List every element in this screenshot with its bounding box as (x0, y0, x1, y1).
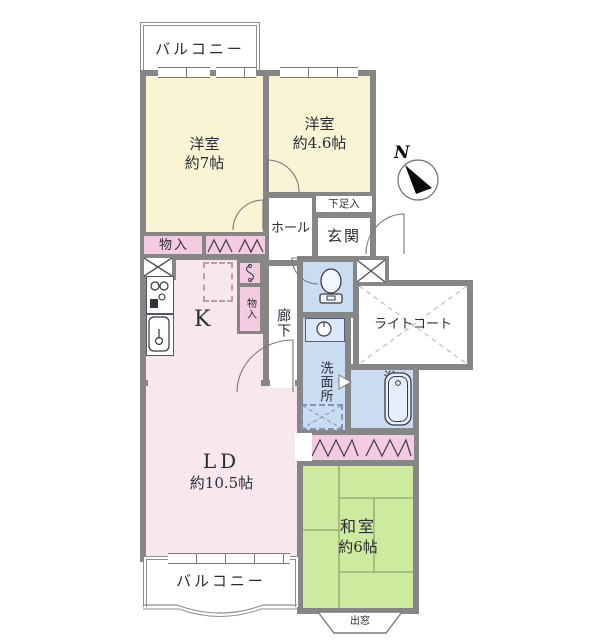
balcony-bottom-label: バルコニー (144, 557, 298, 607)
storage-upper-label: 物入 (144, 236, 204, 256)
hall: ホール (263, 192, 318, 266)
window-west7-a (158, 67, 210, 78)
window-ld (168, 553, 290, 564)
gas-stove (146, 276, 174, 314)
folding-door-icon (308, 435, 414, 461)
washbasin (305, 318, 345, 342)
door-bathroom (339, 374, 353, 390)
living-dining: LD 約10.5帖 (140, 380, 303, 562)
door-swing-west7 (233, 200, 263, 230)
window-west46 (280, 67, 358, 78)
storage-corridor: 物入 (237, 284, 263, 334)
water-heater-icon (240, 263, 260, 283)
compass-north-label: N (393, 143, 411, 163)
door-swing-hall (292, 258, 318, 284)
entrance-label: 玄関 (318, 218, 370, 256)
storage-corridor-label: 物入 (240, 287, 260, 331)
door-swing-west46 (267, 160, 299, 192)
washing-machine-cross (303, 406, 341, 428)
gas-stove-icon (147, 277, 171, 311)
window-west7-b (216, 67, 256, 78)
pipe-shaft-right (353, 256, 389, 286)
living-dining-name: LD (203, 448, 240, 474)
hall-label: ホール (269, 198, 312, 260)
ld-tatami-opening (295, 433, 312, 461)
bathtub-icon (384, 372, 412, 426)
pipe-shaft-icon (144, 258, 172, 276)
western-room-7-size: 約7帖 (185, 154, 225, 174)
refrigerator-space (203, 262, 233, 302)
tatami-lines (303, 466, 413, 608)
japanese-room: 和室 約6帖 (297, 460, 419, 614)
western-room-46-name: 洋室 (304, 115, 334, 135)
washbasin-icon (306, 319, 342, 339)
bathroom: 浴室 (345, 364, 419, 434)
compass-icon: N (384, 142, 446, 206)
balcony-curved-edge (141, 604, 299, 624)
washing-machine-space (301, 404, 343, 430)
door-swing-ld (237, 340, 293, 392)
toilet-icon (316, 268, 346, 308)
light-court: ライトコート (353, 280, 473, 370)
water-heater-box (237, 260, 263, 286)
western-room-7-name: 洋室 (189, 135, 219, 155)
door-swing-entrance (366, 214, 404, 254)
kitchen-sink (146, 314, 174, 356)
folding-door-icon (206, 236, 265, 256)
living-dining-size: 約10.5帖 (190, 474, 253, 494)
western-room-46-size: 約4.6帖 (293, 134, 347, 154)
light-court-cross (359, 286, 467, 364)
floor-plan: バルコニー 洋室 約7帖 洋室 約4.6帖 ホール 下足入 玄関 物入 K 廊下 (0, 0, 614, 640)
bay-window-label: 出窓 (330, 612, 390, 627)
kitchen-sink-icon (147, 315, 171, 353)
pipe-shaft-icon (357, 260, 385, 282)
